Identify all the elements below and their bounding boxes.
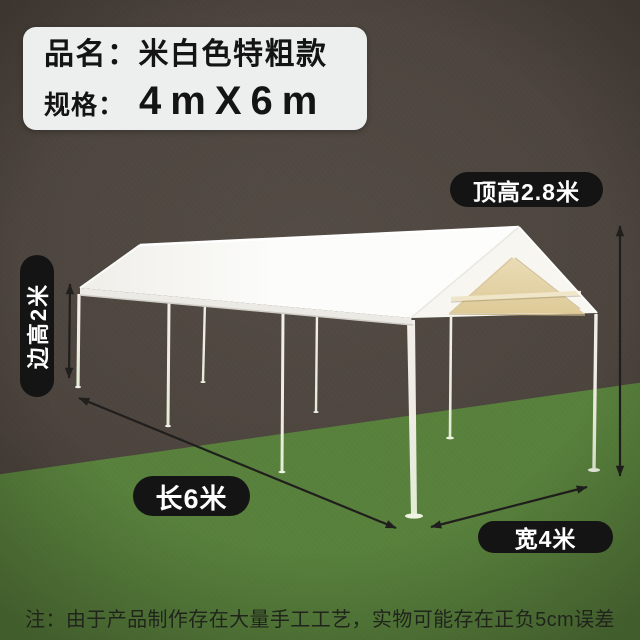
product-spec-label: 规格： <box>44 88 125 122</box>
product-name-row: 品名： 米白色特粗款 <box>44 35 367 75</box>
product-spec-value: 4mX6m <box>139 75 326 128</box>
product-spec-image: 品名： 米白色特粗款 规格： 4mX6m 顶高2.8米 边高2米 长6米 宽4米… <box>0 0 640 640</box>
product-spec-row: 规格： 4mX6m <box>44 75 367 128</box>
top-height-label: 顶高2.8米 <box>450 172 603 207</box>
side-height-label: 边高2米 <box>20 255 54 397</box>
product-name-value: 米白色特粗款 <box>139 35 328 75</box>
width-label: 宽4米 <box>478 521 613 553</box>
tolerance-note: 注：由于产品制作存在大量手工工艺，实物可能存在正负5cm误差 <box>0 603 640 632</box>
spec-box: 品名： 米白色特粗款 规格： 4mX6m <box>23 27 367 130</box>
length-label: 长6米 <box>133 476 250 516</box>
product-name-label: 品名： <box>44 35 139 75</box>
